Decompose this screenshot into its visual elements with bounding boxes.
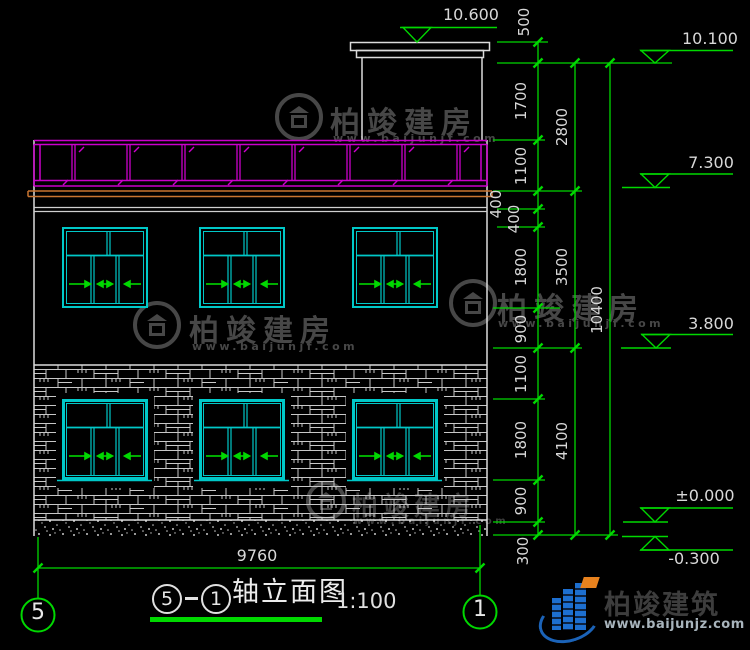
dim-label: 1800 bbox=[513, 410, 529, 470]
company-logo-icon bbox=[538, 574, 602, 642]
dim-label: 400 bbox=[488, 174, 504, 234]
elevation-label-ground: ±0.000 bbox=[665, 487, 745, 505]
elevation-label-floor2: 3.800 bbox=[671, 315, 750, 333]
dim-label: 10400 bbox=[589, 270, 605, 350]
title-underline bbox=[150, 617, 322, 622]
title-bubble-left: 5 bbox=[152, 584, 182, 614]
grid-bubble-right: 1 bbox=[463, 595, 497, 629]
dim-label: 4100 bbox=[554, 411, 570, 471]
annotation-layer: 10.600 10.100 7.300 3.800 ±0.000 -0.300 … bbox=[0, 0, 750, 650]
drawing-scale: 1:100 bbox=[336, 589, 397, 613]
dim-label: 1100 bbox=[513, 344, 529, 404]
elevation-label-roof: 7.300 bbox=[671, 154, 750, 172]
dim-label: 1800 bbox=[513, 237, 529, 297]
title-bubble-right: 1 bbox=[201, 584, 231, 614]
dim-label: 1700 bbox=[513, 71, 529, 131]
dim-label: 3500 bbox=[554, 237, 570, 297]
elevation-label-roof-access: 10.100 bbox=[670, 30, 750, 48]
title-dash bbox=[185, 597, 198, 600]
elevation-label-below-ground: -0.300 bbox=[654, 550, 734, 568]
dim-label: 300 bbox=[515, 521, 531, 581]
elevation-label-top: 10.600 bbox=[431, 6, 511, 24]
elevation-drawing-canvas: 柏竣建房 www.baijunjf.com 柏竣建房 www.baijunjf.… bbox=[0, 0, 750, 650]
dim-label: 2800 bbox=[554, 97, 570, 157]
company-url: www.baijunjz.com bbox=[604, 617, 745, 632]
grid-bubble-left: 5 bbox=[21, 598, 55, 632]
dim-label: 500 bbox=[516, 0, 532, 52]
dim-label-width: 9760 bbox=[217, 547, 297, 565]
dim-label: 1100 bbox=[513, 136, 529, 196]
